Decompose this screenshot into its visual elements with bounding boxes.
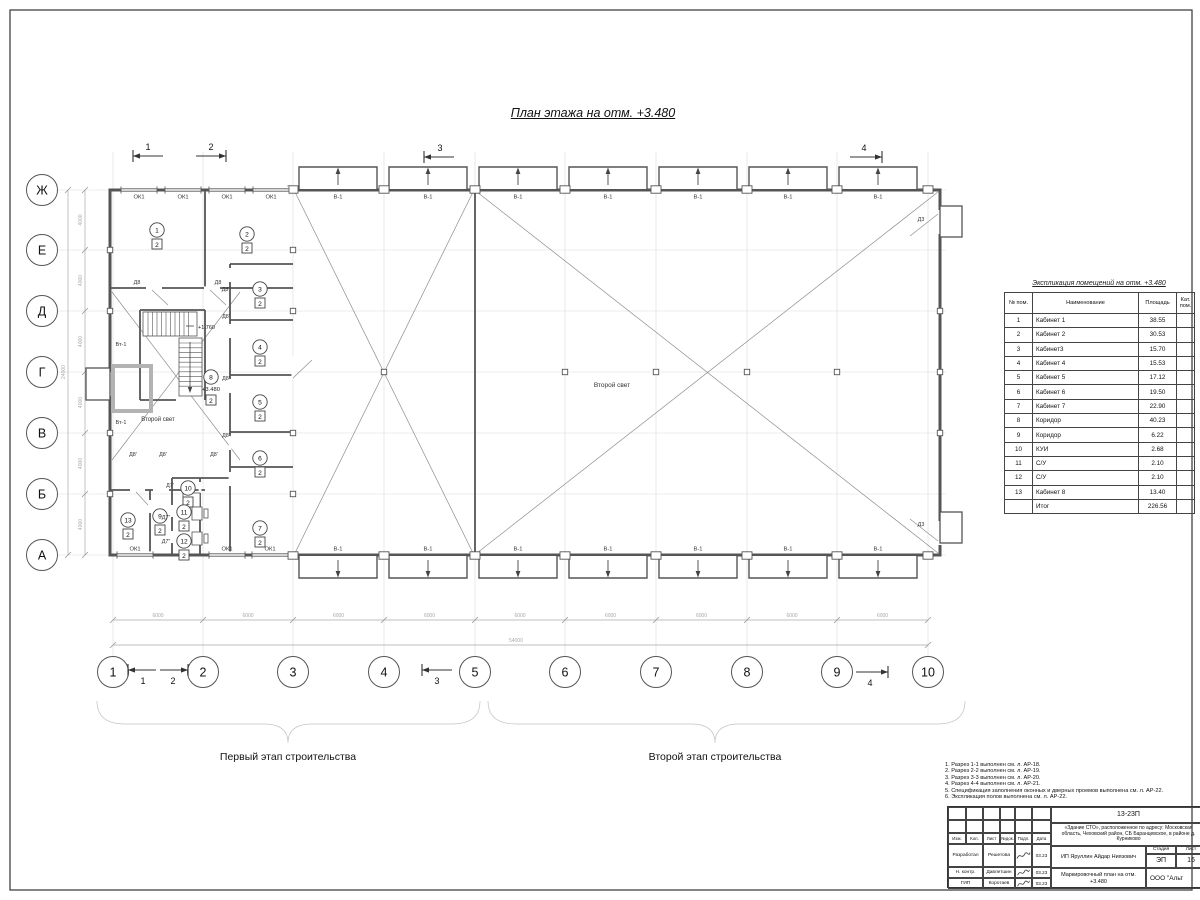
- svg-text:54000: 54000: [509, 638, 523, 644]
- tb-signature: [1015, 878, 1032, 889]
- svg-text:ОК1: ОК1: [264, 547, 275, 553]
- svg-text:2: 2: [209, 398, 213, 405]
- table-cell: 2.68: [1139, 442, 1177, 456]
- svg-text:2: 2: [208, 142, 213, 152]
- table-cell: [1177, 356, 1195, 370]
- table-cell: 30.53: [1139, 328, 1177, 342]
- svg-text:4: 4: [381, 666, 388, 680]
- table-cell: [1177, 485, 1195, 499]
- svg-text:В-1: В-1: [603, 195, 612, 201]
- svg-text:4: 4: [861, 143, 866, 153]
- table-cell: 13: [1005, 485, 1033, 499]
- table-cell: [1177, 328, 1195, 342]
- svg-text:ОК1: ОК1: [177, 195, 188, 201]
- signature-icon: [1016, 879, 1031, 888]
- right-vestibule-top: [940, 206, 962, 237]
- svg-text:8: 8: [209, 374, 213, 381]
- svg-text:6000: 6000: [877, 613, 888, 619]
- revision-cell: [1000, 807, 1015, 820]
- table-row: 12С/У2.10: [1005, 471, 1195, 485]
- svg-text:В-1: В-1: [873, 195, 882, 201]
- tb-role: Разработал: [948, 844, 983, 867]
- table-cell: [1005, 499, 1033, 513]
- svg-text:В-1: В-1: [603, 547, 612, 553]
- toilet-fixture: [192, 507, 202, 520]
- svg-text:Д7': Д7': [166, 483, 174, 489]
- sheet-label: Лист: [1176, 846, 1200, 854]
- revision-cell: [1032, 820, 1051, 833]
- svg-text:Д3: Д3: [918, 522, 925, 528]
- table-cell: Кабинет 8: [1033, 485, 1139, 499]
- svg-text:10: 10: [184, 485, 192, 492]
- explication-title: Экспликация помещений на отм. +3.480: [1004, 280, 1194, 287]
- svg-text:1: 1: [110, 666, 117, 680]
- table-cell: 15.53: [1139, 356, 1177, 370]
- svg-text:В: В: [38, 427, 46, 441]
- svg-text:Д: Д: [38, 305, 47, 319]
- svg-text:В-1: В-1: [423, 547, 432, 553]
- svg-text:В-1: В-1: [333, 547, 342, 553]
- svg-text:6: 6: [562, 666, 569, 680]
- table-row: 13Кабинет 813.40: [1005, 485, 1195, 499]
- svg-text:Д7": Д7": [162, 515, 171, 521]
- revision-cell: [966, 807, 983, 820]
- table-cell: Кабинет 1: [1033, 314, 1139, 328]
- svg-text:4000: 4000: [78, 458, 84, 469]
- door-openings: [108, 210, 941, 545]
- svg-text:ОК1: ОК1: [221, 547, 232, 553]
- svg-text:В-1: В-1: [693, 547, 702, 553]
- svg-text:1: 1: [145, 142, 150, 152]
- svg-text:В-1: В-1: [873, 547, 882, 553]
- table-row: 5Кабинет 517.12: [1005, 371, 1195, 385]
- tb-signature: [1015, 844, 1032, 867]
- tb-name: Коротаев: [983, 878, 1015, 889]
- svg-text:2: 2: [158, 528, 162, 535]
- table-cell: 15.70: [1139, 342, 1177, 356]
- company-name: ООО "Альт: [1146, 868, 1200, 889]
- revision-cell: [983, 807, 1000, 820]
- svg-text:А: А: [38, 549, 47, 563]
- table-row: 3Кабинет315.70: [1005, 342, 1195, 356]
- tb-name: Давлетшин: [983, 867, 1015, 878]
- construction-stage-braces: Первый этап строительства Второй этап ст…: [97, 701, 965, 763]
- right-vestibule-bottom: [940, 512, 962, 543]
- svg-text:Второй свет: Второй свет: [594, 381, 630, 389]
- signature-icon: [1016, 845, 1031, 866]
- general-notes: 1. Разрез 1-1 выполнен см. л. АР-18.2. Р…: [945, 762, 1185, 800]
- svg-text:6000: 6000: [786, 613, 797, 619]
- table-cell: [1177, 314, 1195, 328]
- svg-text:В-1: В-1: [513, 547, 522, 553]
- svg-text:В-1: В-1: [513, 195, 522, 201]
- explication-table: № пом. Наименование Площадь Кат. пом. 1К…: [1004, 292, 1195, 514]
- svg-text:Д8': Д8': [159, 452, 167, 458]
- svg-text:1: 1: [155, 227, 159, 234]
- revision-cell: [1000, 820, 1015, 833]
- revision-cell: [948, 820, 966, 833]
- plan-title: План этажа на отм. +3.480: [453, 106, 733, 120]
- sink-fixture: [204, 534, 208, 543]
- table-cell: 7: [1005, 399, 1033, 413]
- col-name: Наименование: [1033, 293, 1139, 314]
- svg-text:2: 2: [170, 676, 175, 686]
- svg-text:7: 7: [653, 666, 660, 680]
- tb-col-header: №док.: [1000, 833, 1015, 844]
- table-cell: 19.50: [1139, 385, 1177, 399]
- tb-role: ГИП: [948, 878, 983, 889]
- table-cell: Кабинет 5: [1033, 371, 1139, 385]
- svg-text:13: 13: [124, 517, 132, 524]
- svg-text:2: 2: [258, 359, 262, 366]
- table-cell: [1177, 471, 1195, 485]
- svg-text:8: 8: [744, 666, 751, 680]
- revision-cell: [966, 820, 983, 833]
- table-row: 9Коридор6.22: [1005, 428, 1195, 442]
- revision-cell: [948, 807, 966, 820]
- table-cell: 17.12: [1139, 371, 1177, 385]
- table-cell: 13.40: [1139, 485, 1177, 499]
- svg-text:Д8': Д8': [129, 452, 137, 458]
- tb-role: Н. контр.: [948, 867, 983, 878]
- svg-text:2: 2: [258, 414, 262, 421]
- svg-text:2: 2: [155, 242, 159, 249]
- table-row: 11С/У2.10: [1005, 456, 1195, 470]
- svg-text:Ж: Ж: [36, 184, 48, 198]
- svg-text:5: 5: [472, 666, 479, 680]
- walls: [110, 190, 940, 555]
- svg-text:12: 12: [180, 538, 188, 545]
- stage2-label: Второй этап строительства: [649, 751, 782, 763]
- client-name: ИП Яруллин Айдар Ниязович: [1051, 846, 1146, 868]
- table-cell: [1177, 342, 1195, 356]
- svg-text:В-1: В-1: [783, 547, 792, 553]
- table-row: 7Кабинет 722.90: [1005, 399, 1195, 413]
- svg-text:Д8': Д8': [222, 433, 230, 439]
- svg-text:4000: 4000: [78, 336, 84, 347]
- table-cell: 226.56: [1139, 499, 1177, 513]
- svg-text:11: 11: [181, 509, 188, 516]
- tb-date: 03.23: [1032, 878, 1051, 889]
- svg-text:3: 3: [437, 143, 442, 153]
- svg-text:4000: 4000: [78, 275, 84, 286]
- table-cell: КУИ: [1033, 442, 1139, 456]
- table-cell: 9: [1005, 428, 1033, 442]
- svg-text:Г: Г: [39, 366, 46, 380]
- svg-text:6000: 6000: [152, 613, 163, 619]
- svg-text:7: 7: [258, 525, 262, 532]
- table-cell: Коридор: [1033, 428, 1139, 442]
- svg-text:+3.480: +3.480: [202, 387, 220, 393]
- svg-text:6: 6: [258, 455, 262, 462]
- tb-date: 03.23: [1032, 867, 1051, 878]
- table-row: 2Кабинет 230.53: [1005, 328, 1195, 342]
- doc-number: 13-23П: [1051, 807, 1200, 823]
- table-cell: [1177, 414, 1195, 428]
- table-row: 4Кабинет 415.53: [1005, 356, 1195, 370]
- svg-text:6000: 6000: [514, 613, 525, 619]
- table-cell: [1177, 442, 1195, 456]
- table-row: 10КУИ2.68: [1005, 442, 1195, 456]
- svg-text:В-1: В-1: [783, 195, 792, 201]
- tb-col-header: Подл.: [1015, 833, 1032, 844]
- table-cell: 8: [1005, 414, 1033, 428]
- tb-col-header: Дата: [1032, 833, 1051, 844]
- table-cell: 2: [1005, 328, 1033, 342]
- svg-text:ОК1: ОК1: [129, 547, 140, 553]
- tb-col-header: Изм.: [948, 833, 966, 844]
- svg-text:2: 2: [182, 553, 186, 560]
- table-row: 1Кабинет 138.55: [1005, 314, 1195, 328]
- svg-text:В-1: В-1: [423, 195, 432, 201]
- svg-text:Б: Б: [38, 488, 46, 502]
- svg-text:В-1: В-1: [693, 195, 702, 201]
- svg-text:4: 4: [867, 678, 872, 688]
- svg-text:6000: 6000: [424, 613, 435, 619]
- svg-text:Д8": Д8": [222, 287, 231, 293]
- table-cell: 6: [1005, 385, 1033, 399]
- svg-text:5: 5: [258, 399, 262, 406]
- tb-name: Решетова: [983, 844, 1015, 867]
- svg-text:Д7": Д7": [162, 539, 171, 545]
- svg-text:Д8: Д8: [134, 280, 141, 286]
- room-explication: Экспликация помещений на отм. +3.480 № п…: [1004, 280, 1194, 514]
- svg-text:Вт-1: Вт-1: [116, 420, 127, 426]
- col-num: № пом.: [1005, 293, 1033, 314]
- svg-text:3: 3: [258, 286, 262, 293]
- table-cell: Кабинет 2: [1033, 328, 1139, 342]
- revision-cell: [1015, 820, 1032, 833]
- table-cell: С/У: [1033, 471, 1139, 485]
- table-cell: [1177, 385, 1195, 399]
- stage-value: ЭП: [1146, 854, 1176, 868]
- svg-text:2: 2: [258, 301, 262, 308]
- plan-text-labels: Второй светВторой светВт-1Вт-1Д8Д8Д8"Д8'…: [116, 217, 925, 545]
- svg-text:6000: 6000: [333, 613, 344, 619]
- table-header-row: № пом. Наименование Площадь Кат. пом.: [1005, 293, 1195, 314]
- stage1-label: Первый этап строительства: [220, 751, 356, 763]
- table-cell: 2.10: [1139, 471, 1177, 485]
- shaft: [113, 366, 151, 411]
- svg-text:ОК1: ОК1: [265, 195, 276, 201]
- axis-grid-lines: [56, 152, 946, 657]
- table-cell: 22.90: [1139, 399, 1177, 413]
- table-cell: [1177, 371, 1195, 385]
- drawing-sheet: { "sheet": { "plan_title": "План этажа н…: [0, 0, 1200, 900]
- svg-text:ОК1: ОК1: [221, 195, 232, 201]
- svg-text:9: 9: [834, 666, 841, 680]
- section-markers: 12341234: [128, 142, 888, 688]
- table-cell: 11: [1005, 456, 1033, 470]
- col-cat: Кат. пом.: [1177, 293, 1195, 314]
- revision-cell: [1015, 807, 1032, 820]
- table-cell: Кабинет 7: [1033, 399, 1139, 413]
- svg-text:Д8': Д8': [222, 376, 230, 382]
- svg-text:2: 2: [245, 231, 249, 238]
- svg-text:24000: 24000: [61, 365, 67, 379]
- table-cell: Кабинет3: [1033, 342, 1139, 356]
- table-cell: 6.22: [1139, 428, 1177, 442]
- svg-text:Е: Е: [38, 244, 46, 258]
- svg-text:10: 10: [921, 666, 935, 680]
- svg-text:Д8': Д8': [210, 452, 218, 458]
- note-line: 5. Спецификация заполнения оконных и две…: [945, 788, 1185, 794]
- table-cell: 40.23: [1139, 414, 1177, 428]
- svg-text:2: 2: [200, 666, 207, 680]
- svg-text:4000: 4000: [78, 519, 84, 530]
- svg-text:ОК1: ОК1: [133, 195, 144, 201]
- tb-date: 03.23: [1032, 844, 1051, 867]
- sheet-value: 16: [1176, 854, 1200, 868]
- table-cell: [1177, 428, 1195, 442]
- svg-text:Д8': Д8': [222, 314, 230, 320]
- svg-text:3: 3: [434, 676, 439, 686]
- table-cell: [1177, 499, 1195, 513]
- table-cell: 12: [1005, 471, 1033, 485]
- svg-text:+1.760: +1.760: [198, 325, 215, 331]
- left-entrance-porch: [86, 368, 110, 400]
- table-total-row: Итог226.56: [1005, 499, 1195, 513]
- note-line: 6. Экспликация полов выполнена см. л. АР…: [945, 794, 1185, 800]
- svg-text:6000: 6000: [242, 613, 253, 619]
- table-row: 8Коридор40.23: [1005, 414, 1195, 428]
- table-row: 6Кабинет 619.50: [1005, 385, 1195, 399]
- object-info: «Здание СТО», расположенное по адресу: М…: [1051, 823, 1200, 846]
- table-cell: Итог: [1033, 499, 1139, 513]
- svg-text:1: 1: [140, 676, 145, 686]
- table-cell: Кабинет 4: [1033, 356, 1139, 370]
- drawing-title: Маркировочный план на отм. +3.480: [1051, 868, 1146, 889]
- table-cell: 2.10: [1139, 456, 1177, 470]
- col-area: Площадь: [1139, 293, 1177, 314]
- svg-text:2: 2: [258, 540, 262, 547]
- svg-text:4000: 4000: [78, 214, 84, 225]
- svg-text:4000: 4000: [78, 397, 84, 408]
- svg-text:2: 2: [182, 524, 186, 531]
- table-cell: [1177, 399, 1195, 413]
- toilet-fixture: [192, 532, 202, 545]
- stage-label: Стадия: [1146, 846, 1176, 854]
- tb-signature: [1015, 867, 1032, 878]
- svg-text:Второй свет: Второй свет: [141, 416, 175, 423]
- svg-text:Вт-1: Вт-1: [116, 342, 127, 348]
- tb-col-header: Кол.: [966, 833, 983, 844]
- svg-text:6000: 6000: [605, 613, 616, 619]
- table-cell: 1: [1005, 314, 1033, 328]
- table-cell: С/У: [1033, 456, 1139, 470]
- title-block: 13-23П «Здание СТО», расположенное по ад…: [947, 806, 1200, 888]
- svg-text:2: 2: [258, 470, 262, 477]
- tb-col-header: Лист: [983, 833, 1000, 844]
- table-cell: [1177, 456, 1195, 470]
- dimension-lines: 6000600060006000600060006000600060005400…: [61, 187, 931, 648]
- svg-text:6000: 6000: [696, 613, 707, 619]
- table-cell: Коридор: [1033, 414, 1139, 428]
- svg-text:3: 3: [290, 666, 297, 680]
- svg-text:4: 4: [258, 344, 262, 351]
- signature-icon: [1016, 868, 1031, 877]
- revision-cell: [983, 820, 1000, 833]
- axis-bubbles: 12345678910ЖЕДГВБА: [27, 175, 944, 688]
- table-cell: Кабинет 6: [1033, 385, 1139, 399]
- void-cross-lines: [112, 192, 938, 553]
- revision-cell: [1032, 807, 1051, 820]
- table-cell: 5: [1005, 371, 1033, 385]
- svg-text:В-1: В-1: [333, 195, 342, 201]
- svg-text:2: 2: [126, 532, 130, 539]
- table-cell: 4: [1005, 356, 1033, 370]
- sink-fixture: [204, 509, 208, 518]
- svg-text:2: 2: [245, 246, 249, 253]
- table-cell: 10: [1005, 442, 1033, 456]
- table-cell: 3: [1005, 342, 1033, 356]
- table-cell: 38.55: [1139, 314, 1177, 328]
- svg-text:Д8: Д8: [215, 280, 222, 286]
- svg-text:Д3: Д3: [918, 217, 925, 223]
